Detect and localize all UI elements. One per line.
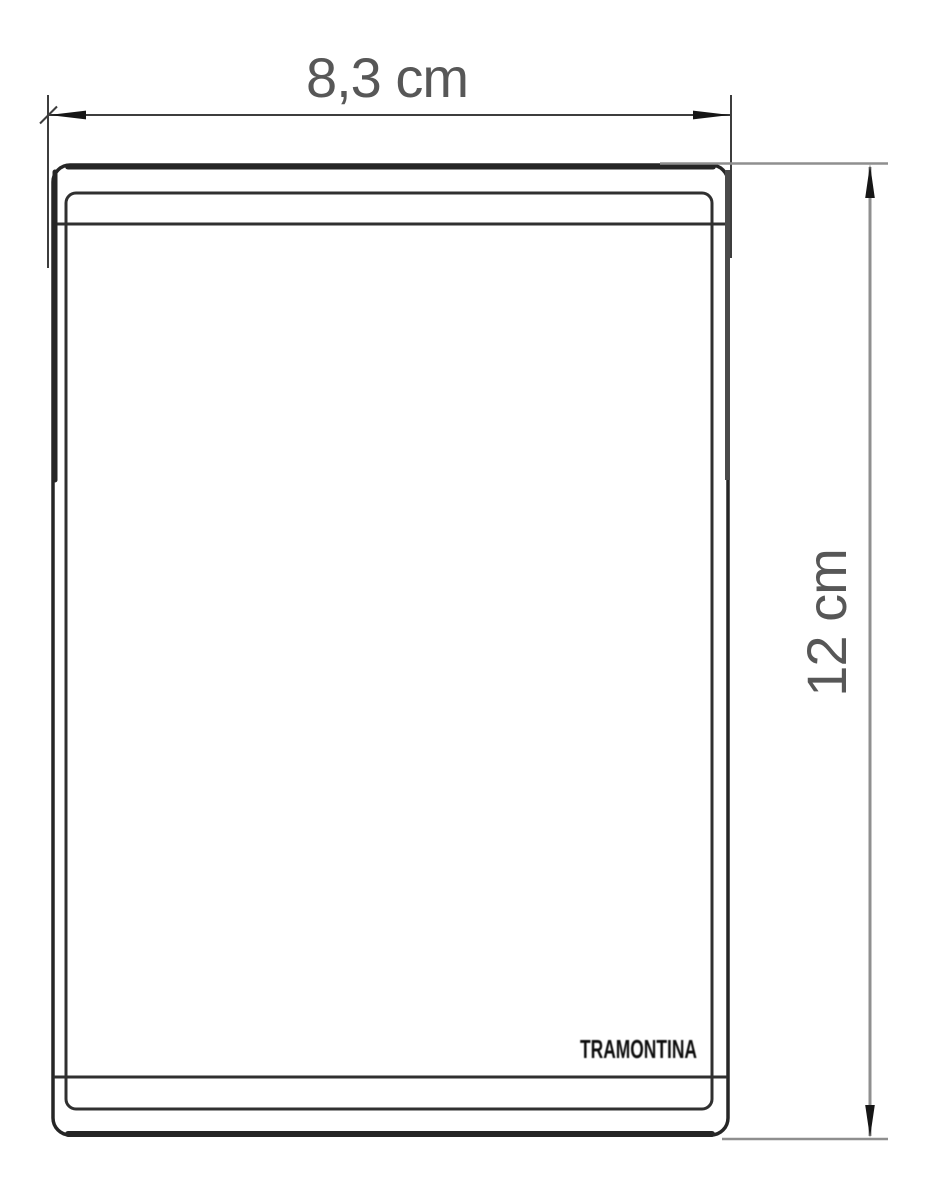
width-arrow-left-icon xyxy=(49,111,86,120)
plate-outer-edge xyxy=(53,165,728,1135)
plate-inner-contour xyxy=(66,193,712,1109)
height-arrow-down-icon xyxy=(865,1105,875,1138)
brand-logo: TRAMONTINA xyxy=(580,1034,697,1064)
width-dimension-label: 8,3 cm xyxy=(306,46,468,109)
width-arrow-right-icon xyxy=(693,111,730,120)
wall-plate: TRAMONTINA xyxy=(53,165,728,1135)
technical-drawing: TRAMONTINA 8,3 cm 12 cm xyxy=(0,0,927,1199)
width-dimension: 8,3 cm xyxy=(40,46,731,268)
drawing-canvas: TRAMONTINA 8,3 cm 12 cm xyxy=(0,0,927,1199)
height-arrow-up-icon xyxy=(865,165,875,199)
height-dimension: 12 cm xyxy=(660,164,888,1140)
height-dimension-label: 12 cm xyxy=(795,549,858,697)
